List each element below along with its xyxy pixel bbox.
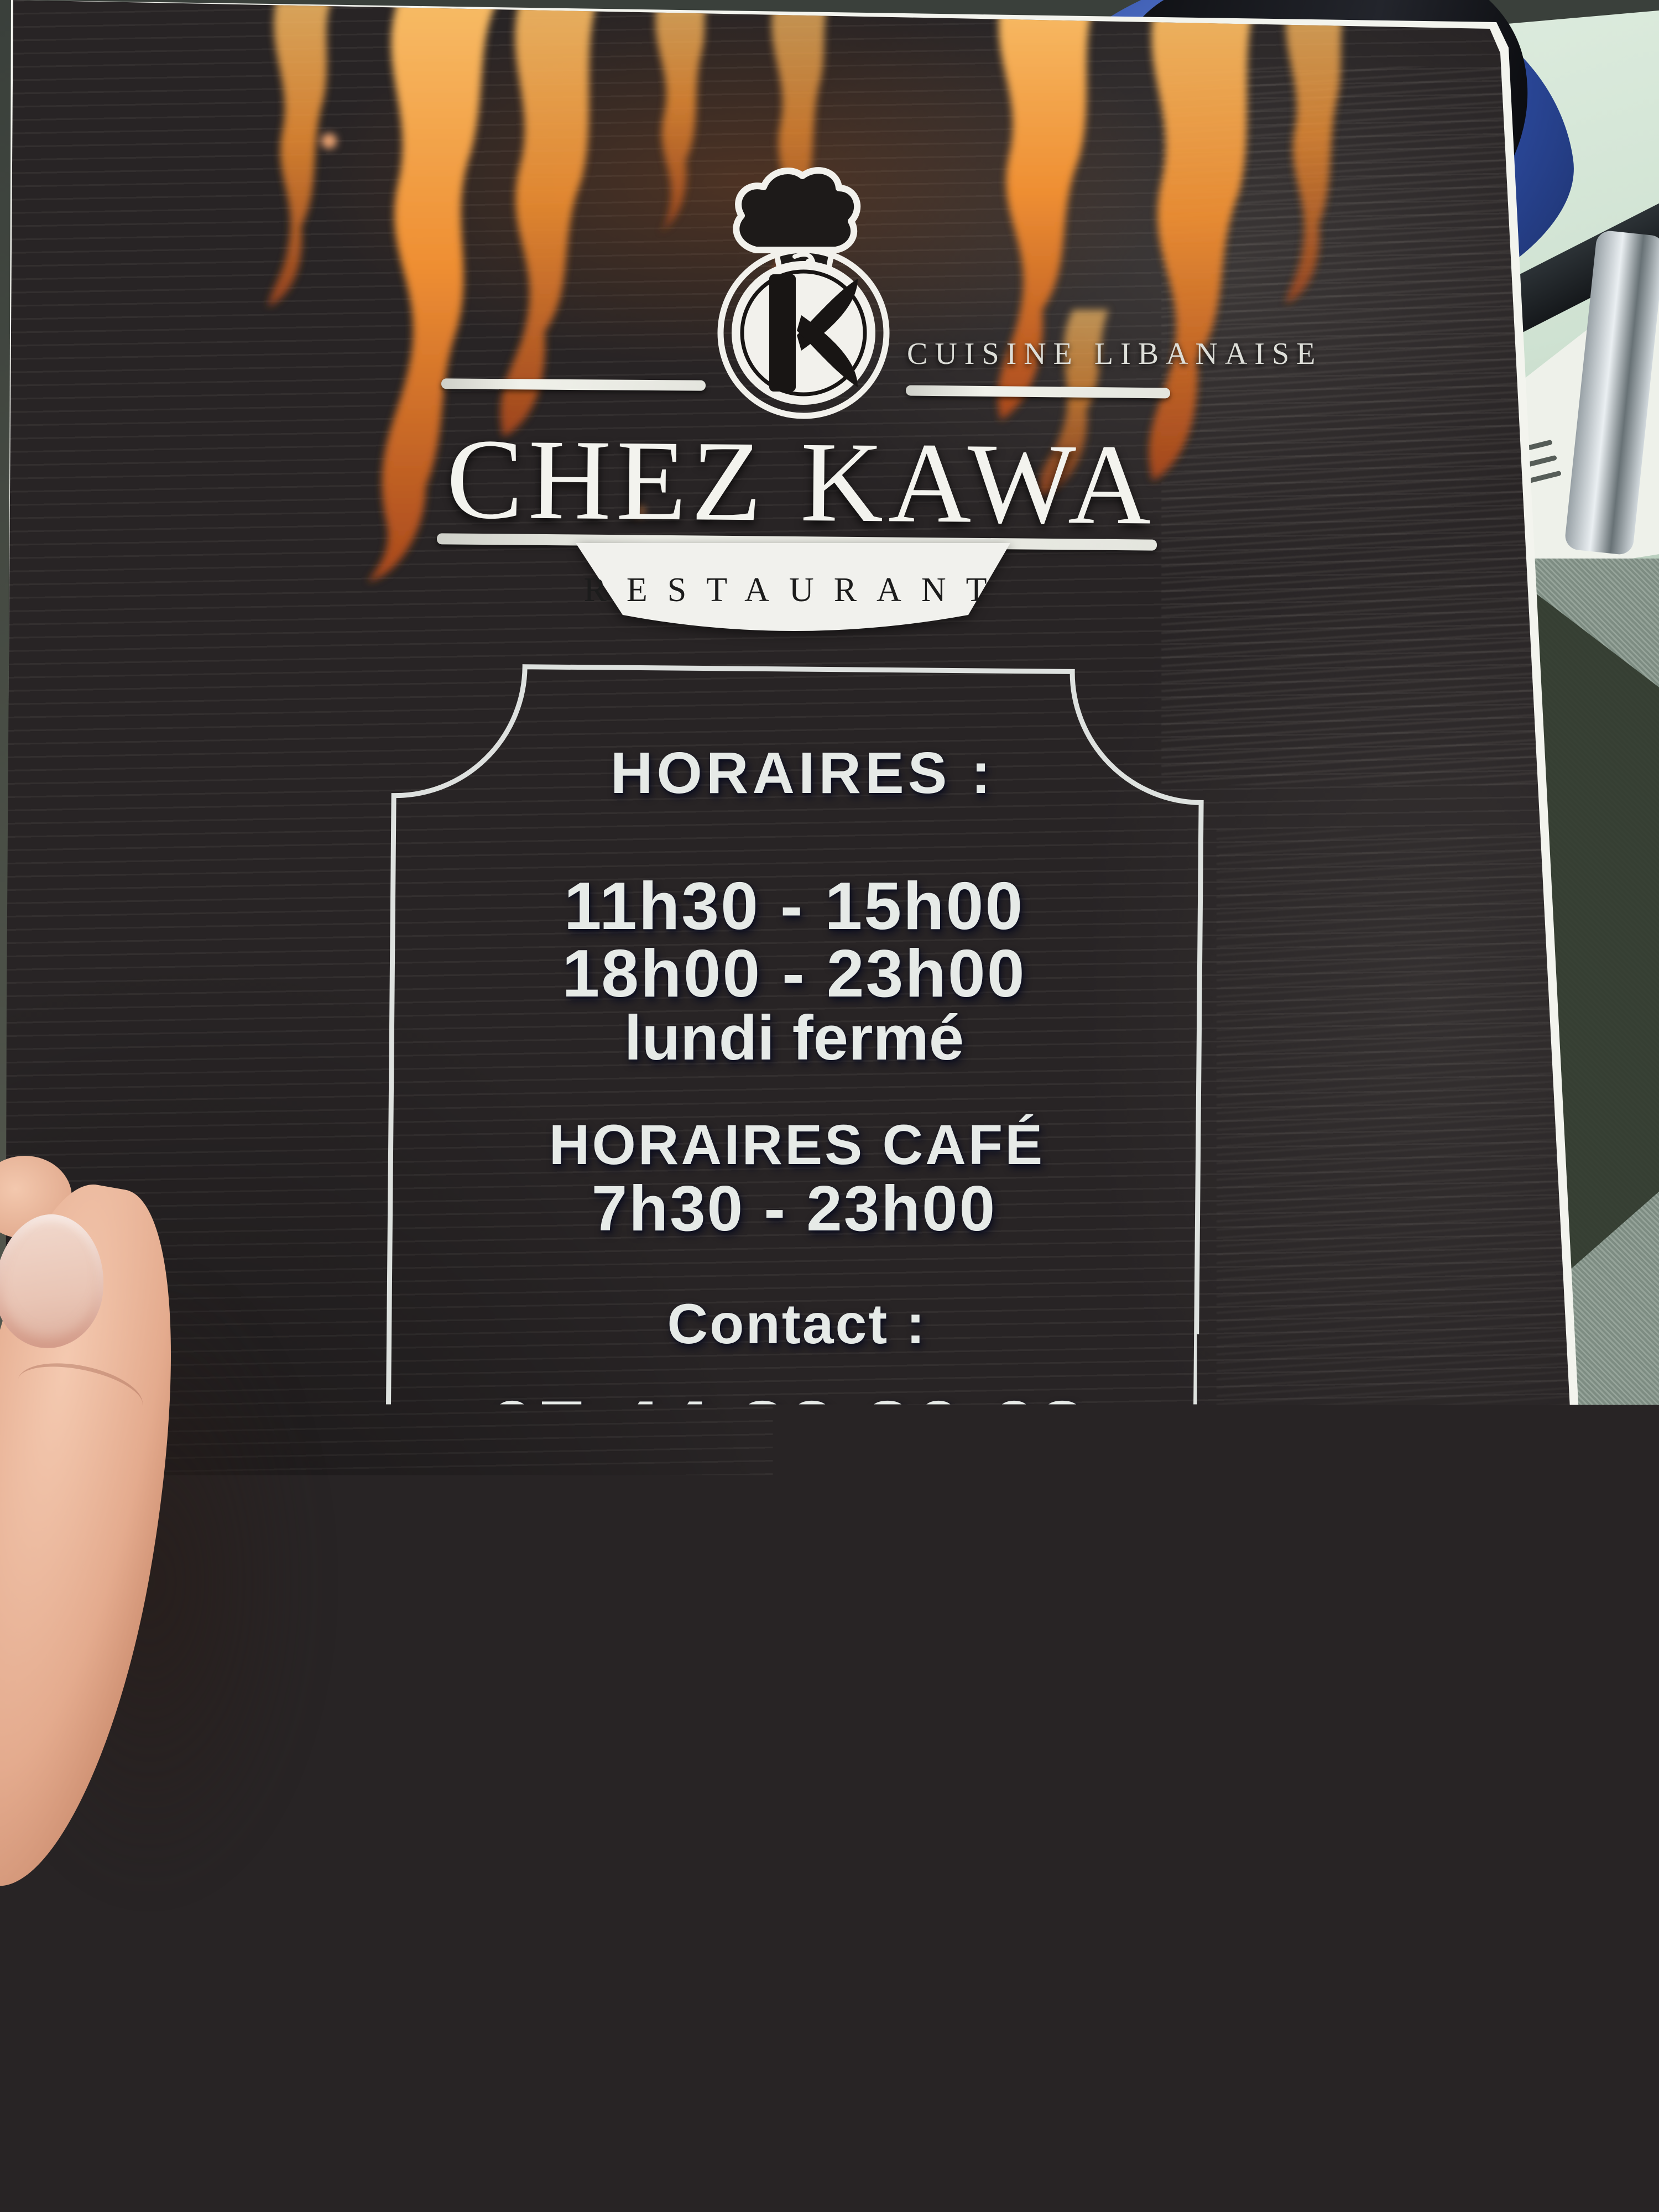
chef-logo-watermark-icon [901,1482,1659,2212]
dinner-hours: 18h00 - 23h00 [562,935,1026,1012]
cafe-hours-heading: HORAIRES CAFÉ [549,1113,1045,1177]
restaurant-name: CHEZ KAWA [446,413,1156,551]
contact-heading: Contact : [667,1292,927,1357]
cafe-hours-range: 7h30 - 23h00 [592,1171,997,1245]
hours-heading: HORAIRES : [611,740,994,807]
phone-number: 07 44 82 86 68 [489,1383,1088,1479]
restaurant-descriptor: RESTAURANT [584,571,1007,610]
brand-tagline: CUISINE LIBANAISE [907,336,1261,372]
decorative-rule-left [441,378,706,390]
closed-day-note: lundi fermé [624,1002,964,1074]
lunch-hours: 11h30 - 15h00 [564,867,1025,945]
photo-of-restaurant-menu: CUISINE LIBANAISE CHEZ KAWA RESTAURANT H… [0,0,1659,2212]
chef-logo-icon [711,161,899,419]
